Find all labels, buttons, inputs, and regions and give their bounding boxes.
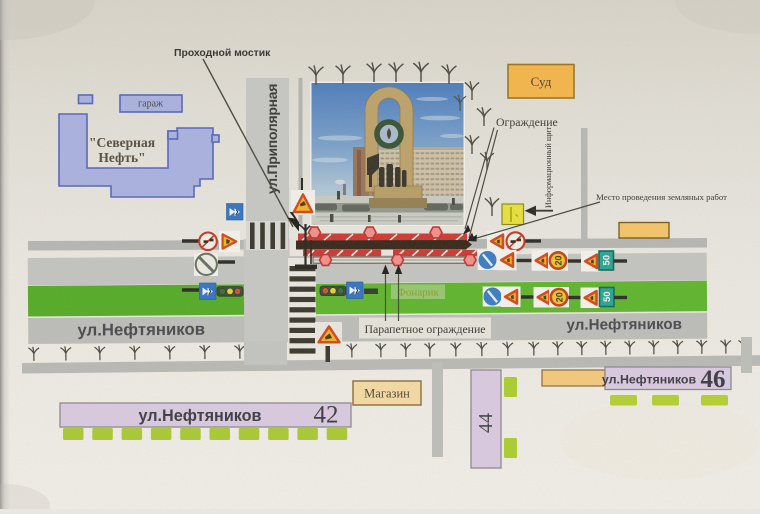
svg-text:Парапетное ограждение: Парапетное ограждение	[364, 322, 485, 336]
svg-text:42: 42	[314, 402, 339, 429]
svg-text:Информационный щит: Информационный щит	[544, 126, 553, 208]
svg-text:44: 44	[475, 413, 497, 433]
svg-text:Место проведения земляных рабо: Место проведения земляных работ	[596, 192, 727, 202]
svg-text:ул.Нефтяников: ул.Нефтяников	[566, 316, 682, 334]
svg-text:Магазин: Магазин	[364, 387, 410, 401]
svg-text:Нефть": Нефть"	[98, 150, 145, 165]
svg-text:ул.Нефтяников: ул.Нефтяников	[602, 373, 697, 387]
svg-text:Суд: Суд	[531, 74, 552, 89]
svg-text:"Северная: "Северная	[89, 135, 155, 150]
svg-text:ул.Нефтяников: ул.Нефтяников	[138, 407, 261, 425]
svg-text:гараж: гараж	[138, 99, 163, 110]
svg-text:Фонарик: Фонарик	[397, 287, 439, 299]
svg-text:46: 46	[701, 366, 726, 393]
svg-text:ул.Нефтяников: ул.Нефтяников	[77, 320, 205, 340]
svg-text:Проходной мостик: Проходной мостик	[174, 48, 271, 59]
